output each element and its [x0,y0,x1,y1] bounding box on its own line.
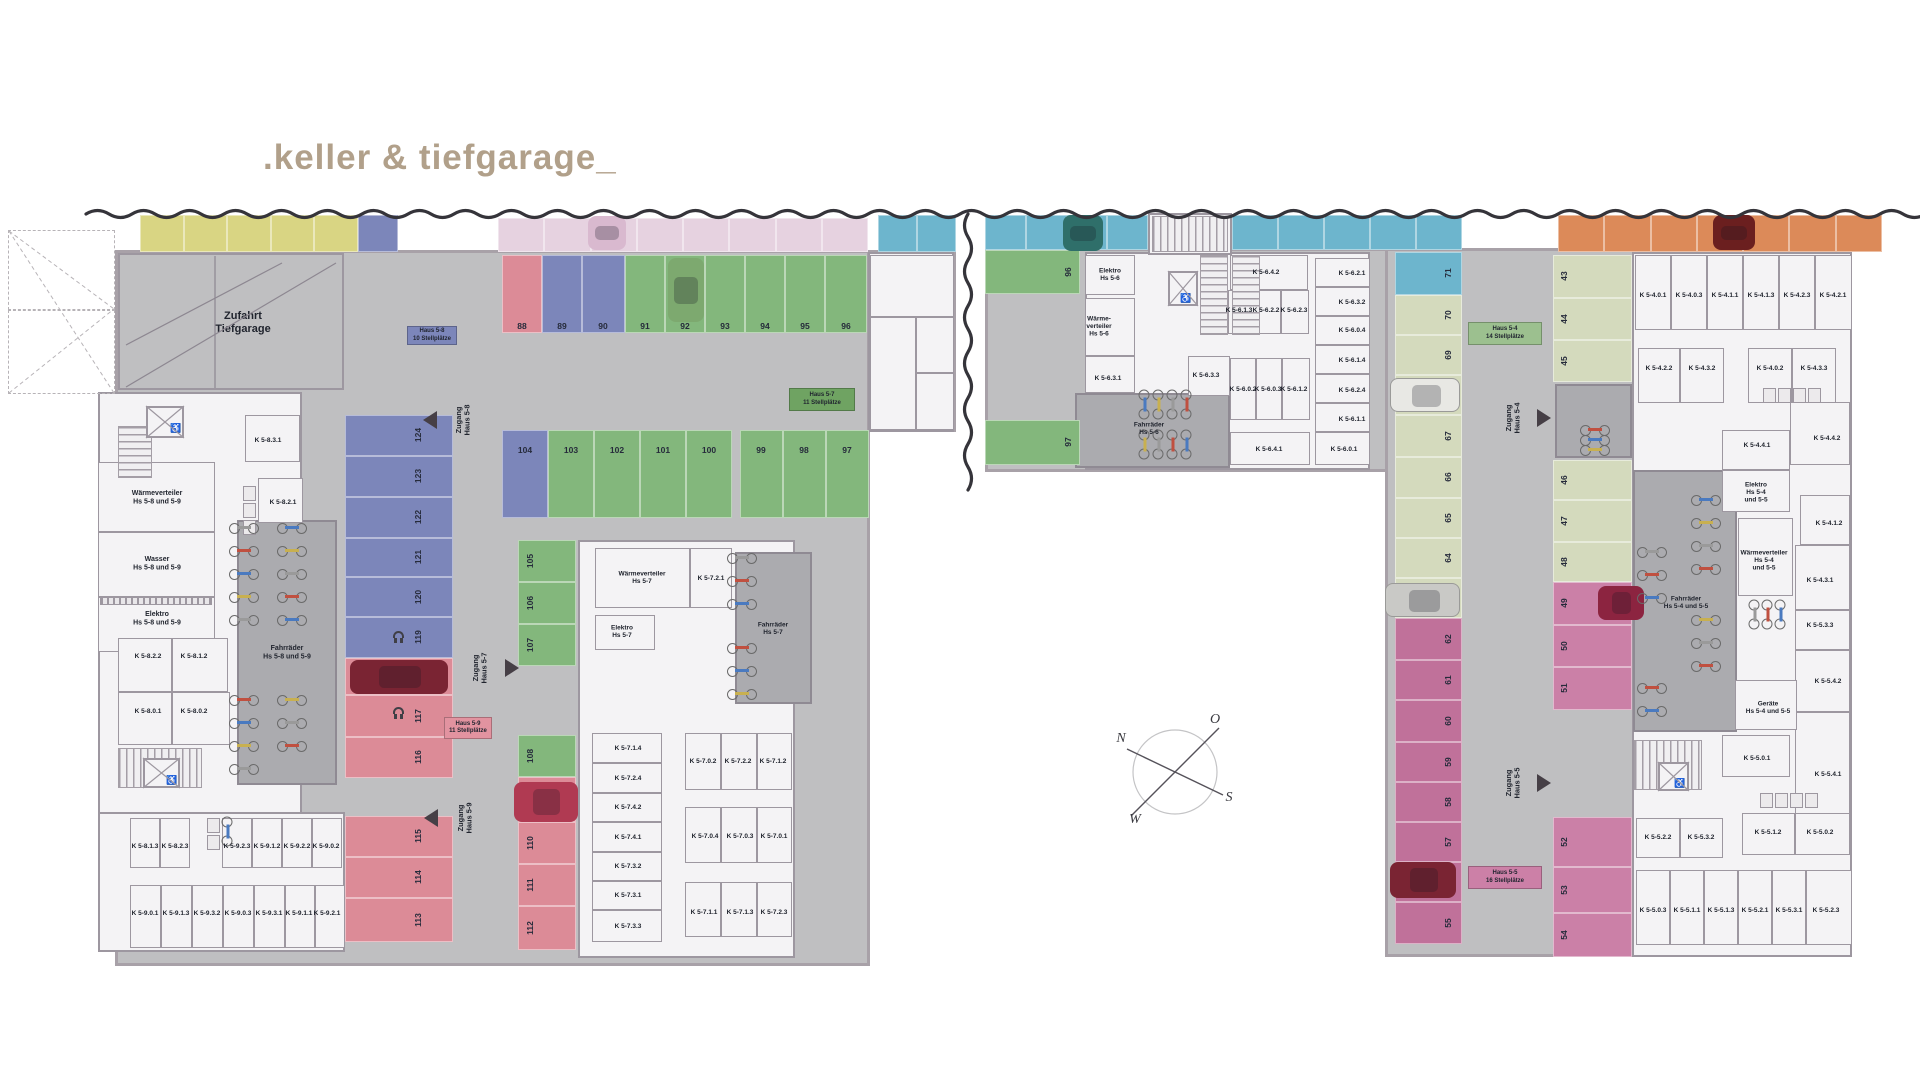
parking-spot-cut [544,218,590,252]
bike-wheel [248,741,259,752]
parking-spot-number: 103 [564,445,578,455]
plan-label: K 5-4.1.3 [1748,291,1775,299]
bike-wheel [229,718,240,729]
bike-wheel [277,741,288,752]
parking-spot-97 [826,430,869,518]
plan-label: Wärmeverteiler Hs 5-8 und 5-9 [132,489,183,506]
parking-spot-number: 65 [1443,513,1453,522]
plan-label: K 5-7.2.2 [725,757,752,765]
bicycle-icon [277,568,307,579]
parking-spot-cut [140,215,184,252]
bicycle-icon [1691,494,1721,505]
bike-wheel [1656,683,1667,694]
plan-label: K 5-7.0.1 [761,832,788,840]
bike-wheel [248,718,259,729]
bike-wheel [727,576,738,587]
bicycle-icon [1154,390,1165,420]
plan-label: K 5-5.0.3 [1640,906,1667,914]
parking-spot-cut [1604,215,1650,252]
bike-wheel [1710,661,1721,672]
bike-frame [237,618,251,621]
line [1131,728,1219,816]
plan-label: K 5-9.3.2 [194,909,221,917]
parking-spot-101 [640,430,686,518]
zugang-arrow-icon [424,809,438,827]
locker-icon [1793,388,1806,403]
plan-label: K 5-5.1.2 [1755,828,1782,836]
bike-wheel [1637,570,1648,581]
plan-label: K 5-6.2.4 [1339,386,1366,394]
bicycle-icon [1691,614,1721,625]
plan-label: K 5-6.0.2 [1230,385,1257,393]
zugang-arrow-icon [1537,774,1551,792]
plan-label: K 5-9.0.3 [225,909,252,917]
zugang-label: Zugang Haus 5-5 [1504,767,1522,798]
parking-spot-cut [1416,215,1462,250]
plan-label: K 5-4.2.1 [1820,291,1847,299]
parking-spot-number: 51 [1559,683,1569,692]
parking-spot-cut [271,215,315,252]
plan-label: K 5-9.3.1 [256,909,283,917]
bike-frame [237,767,251,770]
bike-frame [237,526,251,529]
storage-room [1795,610,1850,650]
plan-label: K 5-7.2.1 [698,574,725,582]
bike-frame [237,744,251,747]
bike-frame [1172,398,1175,412]
plan-label: K 5-5.4.1 [1815,770,1842,778]
bike-wheel [296,523,307,534]
plan-label: K 5-4.0.2 [1757,364,1784,372]
bike-frame [1767,608,1770,622]
plan-label: K 5-7.3.3 [615,922,642,930]
plan-label: K 5-4.4.2 [1814,434,1841,442]
bike-wheel [229,546,240,557]
car-roof [1410,868,1438,891]
parking-spot-number: 57 [1443,837,1453,846]
bike-wheel [1691,518,1702,529]
parking-spot-number: 53 [1559,885,1569,894]
car-roof [1412,385,1441,407]
plan-label: K 5-7.0.4 [692,832,719,840]
parking-spot-number: 98 [799,445,808,455]
parking-spot-113 [345,898,453,942]
bicycle-icon [229,740,259,751]
bike-frame [1588,438,1602,441]
bike-wheel [229,569,240,580]
bike-wheel [296,695,307,706]
storage-room [870,255,954,317]
bike-wheel [248,695,259,706]
bike-wheel [727,553,738,564]
parking-spot-103 [548,430,594,518]
bicycle-icon [1691,563,1721,574]
bike-frame [285,595,299,598]
storage-room [1795,712,1850,815]
plan-label: Fahrräder Hs 5-7 [758,620,788,635]
bike-frame [227,825,230,839]
plan-label: K 5-9.0.1 [132,909,159,917]
car-icon [350,660,448,694]
parking-spot-cut [1370,215,1416,250]
plan-label: K 5-4.2.2 [1646,364,1673,372]
plan-label: K 5-7.1.1 [691,908,718,916]
car-roof [1070,226,1096,241]
plan-label: K 5-8.3.1 [255,436,282,444]
bike-wheel [296,569,307,580]
parking-spot-121 [345,538,453,577]
parking-spot-cut [878,215,917,252]
plan-label: K 5-4.4.1 [1744,441,1771,449]
bicycle-icon [1168,390,1179,420]
bicycle-icon [1637,705,1667,716]
bicycle-icon [727,598,757,609]
plan-label: K 5-6.2.1 [1339,269,1366,277]
plan-label: Wärmeverteiler Hs 5-4 und 5-5 [1741,548,1788,571]
parking-spot-number: 97 [842,445,851,455]
parking-spot-cut [1324,215,1370,250]
bike-frame [1699,544,1713,547]
bicycle-icon [727,665,757,676]
bike-frame [285,744,299,747]
locker-icon [1775,793,1788,808]
bicycle-icon [277,614,307,625]
bicycle-icon [1168,430,1179,460]
plan-label: K 5-5.3.1 [1776,906,1803,914]
zugang-label: Zugang Haus 5-8 [454,404,472,435]
parking-spot-number: 117 [413,709,423,723]
plan-label: K 5-7.4.2 [615,803,642,811]
plan-label: K 5-4.0.3 [1676,291,1703,299]
bike-frame [285,698,299,701]
storage-room [118,638,172,692]
plan-label: K 5-8.0.1 [135,707,162,715]
parking-spot-cut [1836,215,1882,252]
bicycle-icon [229,717,259,728]
parking-spot-number: 88 [517,321,526,331]
bicycle-icon [229,591,259,602]
parking-spot-number: 60 [1443,716,1453,725]
car-roof [1612,592,1631,614]
bike-wheel [277,569,288,580]
plan-label: Elektro Hs 5-8 und 5-9 [133,610,181,627]
plan-label: K 5-6.3.1 [1095,374,1122,382]
bike-wheel [248,764,259,775]
plan-label: K 5-7.0.3 [727,832,754,840]
plan-label: K 5-5.2.2 [1645,833,1672,841]
bike-frame [1645,573,1659,576]
plan-label: K 5-5.3.3 [1807,621,1834,629]
plan-label: Fahrräder Hs 5-4 und 5-5 [1664,594,1708,609]
parking-spot-number: 66 [1443,472,1453,481]
plan-label: Zufahrt Tiefgarage [215,309,270,335]
plan-label: K 5-7.2.3 [761,908,788,916]
parking-spot-number: 115 [413,829,423,843]
bike-wheel [248,523,259,534]
bike-wheel [248,569,259,580]
parking-spot-number: 104 [518,445,532,455]
parking-spot-cut [184,215,228,252]
stairs-icon [1232,255,1260,335]
car-roof [1721,226,1748,241]
bike-wheel [1637,593,1648,604]
parking-spot-number: 91 [640,321,649,331]
bike-wheel [727,643,738,654]
ev-charger-icon [393,707,404,714]
plan-label: K 5-6.0.3 [1255,385,1282,393]
bike-wheel [296,718,307,729]
bicycle-icon [1182,430,1193,460]
parking-spot-number: 59 [1443,757,1453,766]
compass-letter: S [1226,790,1233,805]
bike-wheel [1656,570,1667,581]
bike-frame [1186,398,1189,412]
parking-spot-number: 100 [702,445,716,455]
stellplaetze-label: Haus 5-5 16 Stellplätze [1468,866,1542,889]
plan-label: K 5-7.4.1 [615,833,642,841]
bike-wheel [229,695,240,706]
bicycle-icon [229,763,259,774]
bicycle-icon [277,591,307,602]
plan-label: K 5-6.0.4 [1339,326,1366,334]
bicycle-icon [229,568,259,579]
bicycle-icon [1750,600,1761,630]
parking-spot-number: 69 [1443,350,1453,359]
parking-spot-number: 121 [413,550,423,564]
parking-spot-100 [686,430,732,518]
parking-spot-number: 43 [1559,271,1569,280]
bike-wheel [229,523,240,534]
car-roof [1409,590,1441,612]
zugang-label: Zugang Haus 5-4 [1504,402,1522,433]
bike-wheel [1637,683,1648,694]
bike-wheel [229,764,240,775]
bicycle-icon [229,694,259,705]
floor-plan-canvas: .keller & tiefgarage_ 888990919293949596… [0,0,1920,1080]
bike-frame [1158,398,1161,412]
bike-frame [1186,438,1189,452]
zugang-arrow-icon [1537,409,1551,427]
parking-spot-cut [729,218,775,252]
stellplaetze-label: Haus 5-4 14 Stellplätze [1468,322,1542,345]
bike-wheel [1710,518,1721,529]
bike-wheel [229,615,240,626]
plan-label: Elektro Hs 5-6 [1099,266,1121,281]
bike-frame [1699,664,1713,667]
plan-label: K 5-8.1.3 [132,842,159,850]
bike-wheel [727,689,738,700]
parking-spot-cut [1651,215,1697,252]
parking-spot-cut [985,215,1026,250]
compass-letter: N [1115,731,1126,746]
parking-spot-cut [1789,215,1835,252]
parking-spot-number: 55 [1443,918,1453,927]
plan-label: K 5-9.0.2 [313,842,340,850]
bike-wheel [229,741,240,752]
plan-label: K 5-6.3.3 [1193,371,1220,379]
bike-wheel [1656,547,1667,558]
bike-frame [237,698,251,701]
parking-spot-number: 106 [525,596,535,610]
plan-label: K 5-8.1.2 [181,652,208,660]
bike-frame [735,602,749,605]
car-icon [1713,215,1755,250]
plan-label: ♿ [1674,778,1685,789]
plan-label: K 5-7.1.4 [615,744,642,752]
parking-spot-cut [917,215,956,252]
plan-label: K 5-6.3.2 [1339,298,1366,306]
plan-label: ♿ [170,423,181,434]
plan-label: K 5-4.1.1 [1712,291,1739,299]
parking-spot-number: 105 [525,554,535,568]
bike-wheel [296,592,307,603]
bike-wheel [1599,445,1610,456]
parking-spot-number: 48 [1559,557,1569,566]
car-icon [1385,583,1460,617]
parking-spot-number: 47 [1559,516,1569,525]
bicycle-icon [1763,600,1774,630]
bike-wheel [277,615,288,626]
bicycle-icon [1691,540,1721,551]
locker-icon [1763,388,1776,403]
bike-wheel [277,546,288,557]
parking-spot-number: 58 [1443,797,1453,806]
plan-label: Fahrräder Hs 5-8 und 5-9 [263,644,311,661]
parking-spot-number: 64 [1443,553,1453,562]
bike-frame [237,572,251,575]
storage-room [1638,348,1680,403]
bike-frame [735,579,749,582]
bike-wheel [296,615,307,626]
parking-spot-cut [227,215,271,252]
bike-wheel [248,546,259,557]
parking-spot-number: 97 [1063,437,1073,446]
bike-frame [1780,608,1783,622]
plan-label: K 5-5.0.1 [1744,754,1771,762]
bicycle-icon [1140,390,1151,420]
bike-frame [237,721,251,724]
plan-label: K 5-7.1.3 [727,908,754,916]
bike-wheel [1637,547,1648,558]
plan-label: K 5-5.2.1 [1742,906,1769,914]
line [1127,749,1223,795]
bike-frame [1172,438,1175,452]
parking-spot-cut [314,215,358,252]
parking-spot-number: 92 [680,321,689,331]
locker-icon [243,486,256,501]
stellplaetze-label: Haus 5-8 10 Stellplätze [407,326,457,345]
bike-wheel [746,599,757,610]
parking-spot-cut [776,218,822,252]
plan-label: K 5-5.0.2 [1807,828,1834,836]
bike-frame [1144,398,1147,412]
bike-frame [237,549,251,552]
parking-spot-104 [502,430,548,518]
plan-label: ♿ [1180,293,1191,304]
bike-wheel [1710,615,1721,626]
parking-spot-number: 46 [1559,475,1569,484]
storage-room [172,638,228,692]
plan-label: K 5-5.3.2 [1688,833,1715,841]
bicycle-icon [229,614,259,625]
bike-wheel [1637,706,1648,717]
parking-spot-number: 123 [413,469,423,483]
bike-wheel [1691,615,1702,626]
bike-frame [1699,521,1713,524]
bike-wheel [746,576,757,587]
page-title: .keller & tiefgarage_ [263,138,617,178]
parking-spot-number: 54 [1559,930,1569,939]
parking-spot-102 [594,430,640,518]
parking-spot-cut [637,218,683,252]
bicycle-icon [727,642,757,653]
parking-spot-114 [345,857,453,898]
parking-spot-cut [1278,215,1324,250]
parking-spot-number: 62 [1443,634,1453,643]
parking-spot-117 [345,695,453,737]
cut-wave-line [965,214,972,490]
stellplaetze-label: Haus 5-9 11 Stellplätze [444,717,492,739]
car-roof [674,277,697,304]
plan-label: K 5-6.1.2 [1281,385,1308,393]
storage-room [1722,430,1790,470]
bicycle-icon [727,552,757,563]
bicycle-icon [1691,637,1721,648]
storage-room [172,692,230,745]
bike-frame [285,721,299,724]
plan-label: K 5-4.0.1 [1640,291,1667,299]
parking-spot-number: 114 [413,870,423,884]
bicycle-icon [1637,682,1667,693]
existing-structure [8,230,115,310]
parking-spot-number: 49 [1559,598,1569,607]
parking-spot-number: 61 [1443,675,1453,684]
plan-label: ♿ [166,775,177,786]
car-roof [595,226,619,240]
parking-spot-number: 99 [756,445,765,455]
plan-label: Elektro Hs 5-7 [611,623,633,638]
parking-spot-number: 124 [413,428,423,442]
bike-wheel [1691,541,1702,552]
bike-wheel [746,553,757,564]
bike-frame [1699,567,1713,570]
parking-spot-number: 89 [557,321,566,331]
storage-room [1680,348,1724,403]
bike-frame [735,669,749,672]
plan-label: K 5-7.1.2 [760,757,787,765]
locker-icon [1778,388,1791,403]
car-roof [533,789,560,815]
car-icon [588,216,626,250]
car-icon [668,258,704,322]
bicycle-icon [727,575,757,586]
plan-label: K 5-5.2.3 [1813,906,1840,914]
plan-label: K 5-7.0.2 [690,757,717,765]
parking-spot-116 [345,737,453,778]
bike-frame [285,572,299,575]
bicycle-icon [229,522,259,533]
locker-icon [1760,793,1773,808]
parking-spot-number: 96 [1063,267,1073,276]
bicycle-icon [727,688,757,699]
bicycle-icon [1637,569,1667,580]
bike-wheel [1710,541,1721,552]
zugang-arrow-icon [423,411,437,429]
plan-label: K 5-8.2.3 [162,842,189,850]
bike-frame [285,549,299,552]
parking-spot-cut [358,215,398,252]
parking-spot-number: 71 [1443,268,1453,277]
